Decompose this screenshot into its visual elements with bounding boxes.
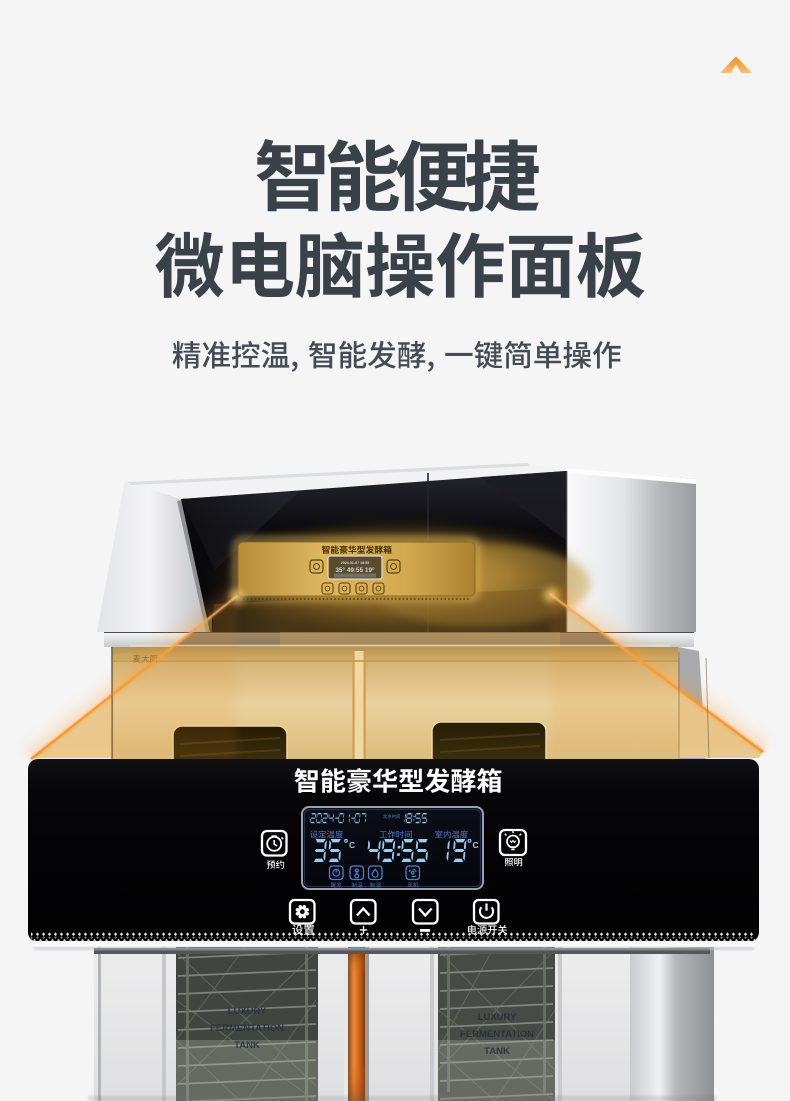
svg-text:C: C — [349, 840, 355, 850]
svg-text:2024-01-07 18:55: 2024-01-07 18:55 — [341, 561, 370, 565]
svg-text:FERMENTATION: FERMENTATION — [460, 1029, 534, 1040]
svg-text:TANK: TANK — [484, 1046, 510, 1057]
svg-text:FERMENTATION: FERMENTATION — [210, 1023, 284, 1034]
svg-text:35° 49:55 19°: 35° 49:55 19° — [335, 566, 375, 574]
svg-text:LUXURY: LUXURY — [478, 1012, 517, 1023]
svg-text:TANK: TANK — [234, 1040, 260, 1051]
svg-text:LUXURY: LUXURY — [228, 1006, 267, 1017]
svg-text:C: C — [473, 840, 479, 850]
